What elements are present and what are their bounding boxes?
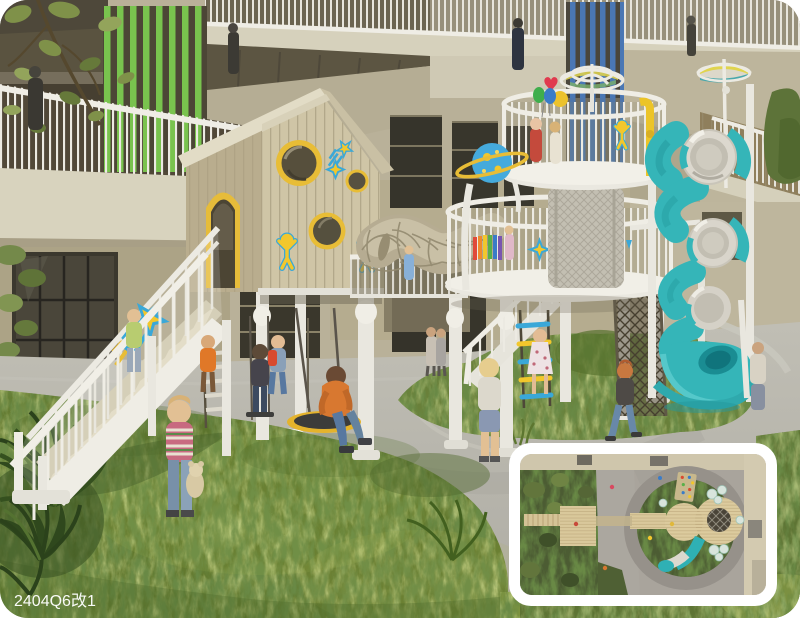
- svg-text:2404Q6改1: 2404Q6改1: [14, 592, 96, 610]
